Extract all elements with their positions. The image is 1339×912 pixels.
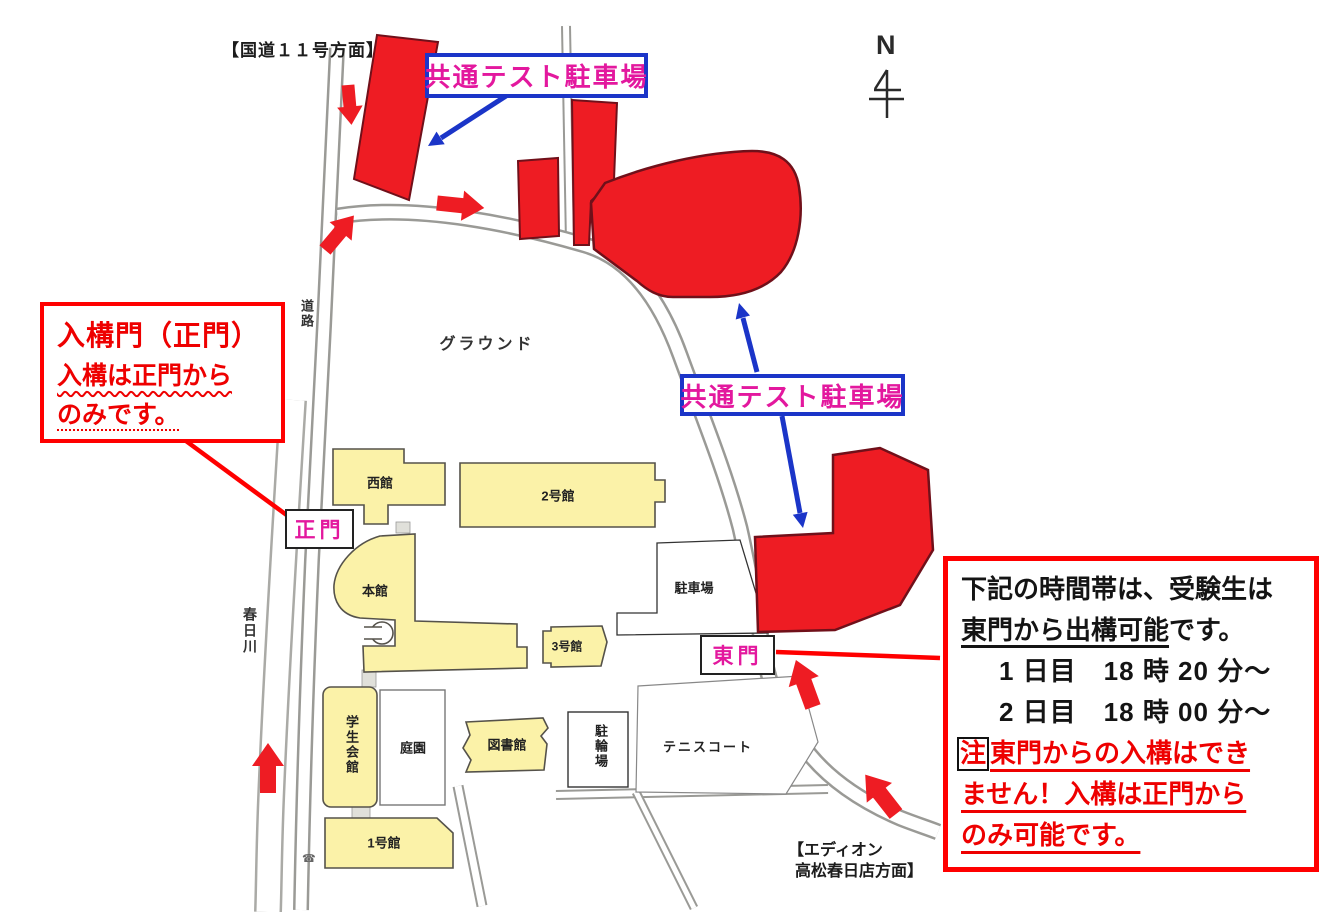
- building-main-hall: [334, 534, 527, 672]
- main-gate-note: 入構門（正門） 入構は正門から のみです。: [40, 302, 285, 443]
- label-bldg1: 1号館: [367, 833, 400, 852]
- label-tennis-court: テニスコート: [663, 737, 753, 756]
- campus-paths: [458, 786, 828, 908]
- callout-test-parking-2: 共通テスト駐車場: [680, 374, 905, 416]
- label-garden: 庭園: [400, 738, 426, 757]
- label-main-hall: 本館: [362, 581, 388, 600]
- east-gate-note-line2-underline: 東門から出構可能: [961, 615, 1169, 645]
- label-river: 春日川: [240, 607, 260, 655]
- blue-arrowhead-icon: [736, 303, 750, 320]
- main-gate-note-title: 入構門（正門）: [57, 314, 268, 357]
- label-bicycle-parking: 駐輪場: [591, 724, 610, 769]
- edion-line1: 【エディオン: [788, 840, 923, 861]
- warn2-text: ません！入構は正門から: [961, 779, 1246, 809]
- main-hall-notch-slot: [364, 627, 382, 639]
- phone-icon: ☎: [302, 853, 316, 865]
- label-road: 道路: [297, 299, 316, 329]
- tennis-court-area: [636, 676, 818, 794]
- label-west-hall: 西館: [367, 473, 393, 492]
- east-gate-note-line1: 下記の時間帯は、受験生は: [961, 569, 1302, 610]
- river-kasuga: [268, 400, 293, 912]
- blue-arrow-line: [782, 416, 800, 513]
- east-gate-note-warn1: 注東門からの入構はでき: [961, 733, 1302, 774]
- north-label: N: [876, 30, 896, 61]
- blue-arrow-line: [743, 318, 757, 372]
- label-student-hall: 学生会館: [342, 715, 361, 775]
- blue-arrowhead-icon: [793, 512, 808, 528]
- test-parking-zone-b: [518, 158, 559, 239]
- leader-line-east-gate: [776, 652, 940, 658]
- east-gate-note-warn2: ません！入構は正門から: [961, 774, 1302, 815]
- direction-label-route11: 【国道１１号方面】: [222, 36, 384, 61]
- east-gate-note-line2: 東門から出構可能です。: [961, 610, 1302, 651]
- label-library: 図書館: [487, 735, 526, 754]
- warn3-text: のみ可能です。: [961, 820, 1140, 850]
- east-gate-note-warn3: のみ可能です。: [961, 815, 1302, 856]
- blue-arrow-line: [441, 96, 506, 138]
- east-gate-label: 東門: [700, 635, 775, 675]
- label-ground: グラウンド: [439, 330, 534, 354]
- campus-map: ☎ 【国道１１号方面】 【エディオン 高松春日店方面】 N グラウンド 道路 春…: [0, 0, 1339, 912]
- label-bldg3: 3号館: [552, 638, 583, 655]
- direction-label-edion: 【エディオン 高松春日店方面】: [788, 840, 923, 882]
- connector: [396, 522, 410, 533]
- callout-test-parking-1: 共通テスト駐車場: [425, 53, 648, 98]
- east-gate-note-day2: 2 日目 18 時 00 分～: [961, 692, 1302, 733]
- east-gate-note-day1: 1 日目 18 時 20 分～: [961, 651, 1302, 692]
- east-gate-note: 下記の時間帯は、受験生は 東門から出構可能です。 1 日目 18 時 20 分～…: [943, 556, 1319, 872]
- edion-line2: 高松春日店方面】: [788, 861, 923, 882]
- note-mark: 注: [957, 737, 989, 771]
- north-arrow-icon: [869, 70, 904, 118]
- label-parking-lot: 駐車場: [674, 578, 713, 597]
- east-gate-note-line2-tail: です。: [1169, 615, 1244, 645]
- label-bldg2: 2号館: [541, 486, 574, 505]
- test-parking-zone-e: [755, 448, 933, 632]
- warn1-text: 東門からの入構はでき: [990, 738, 1250, 768]
- main-gate-note-line2: 入構は正門から: [57, 357, 268, 396]
- main-gate-note-line3: のみです。: [57, 396, 268, 435]
- main-gate-label: 正門: [285, 509, 354, 549]
